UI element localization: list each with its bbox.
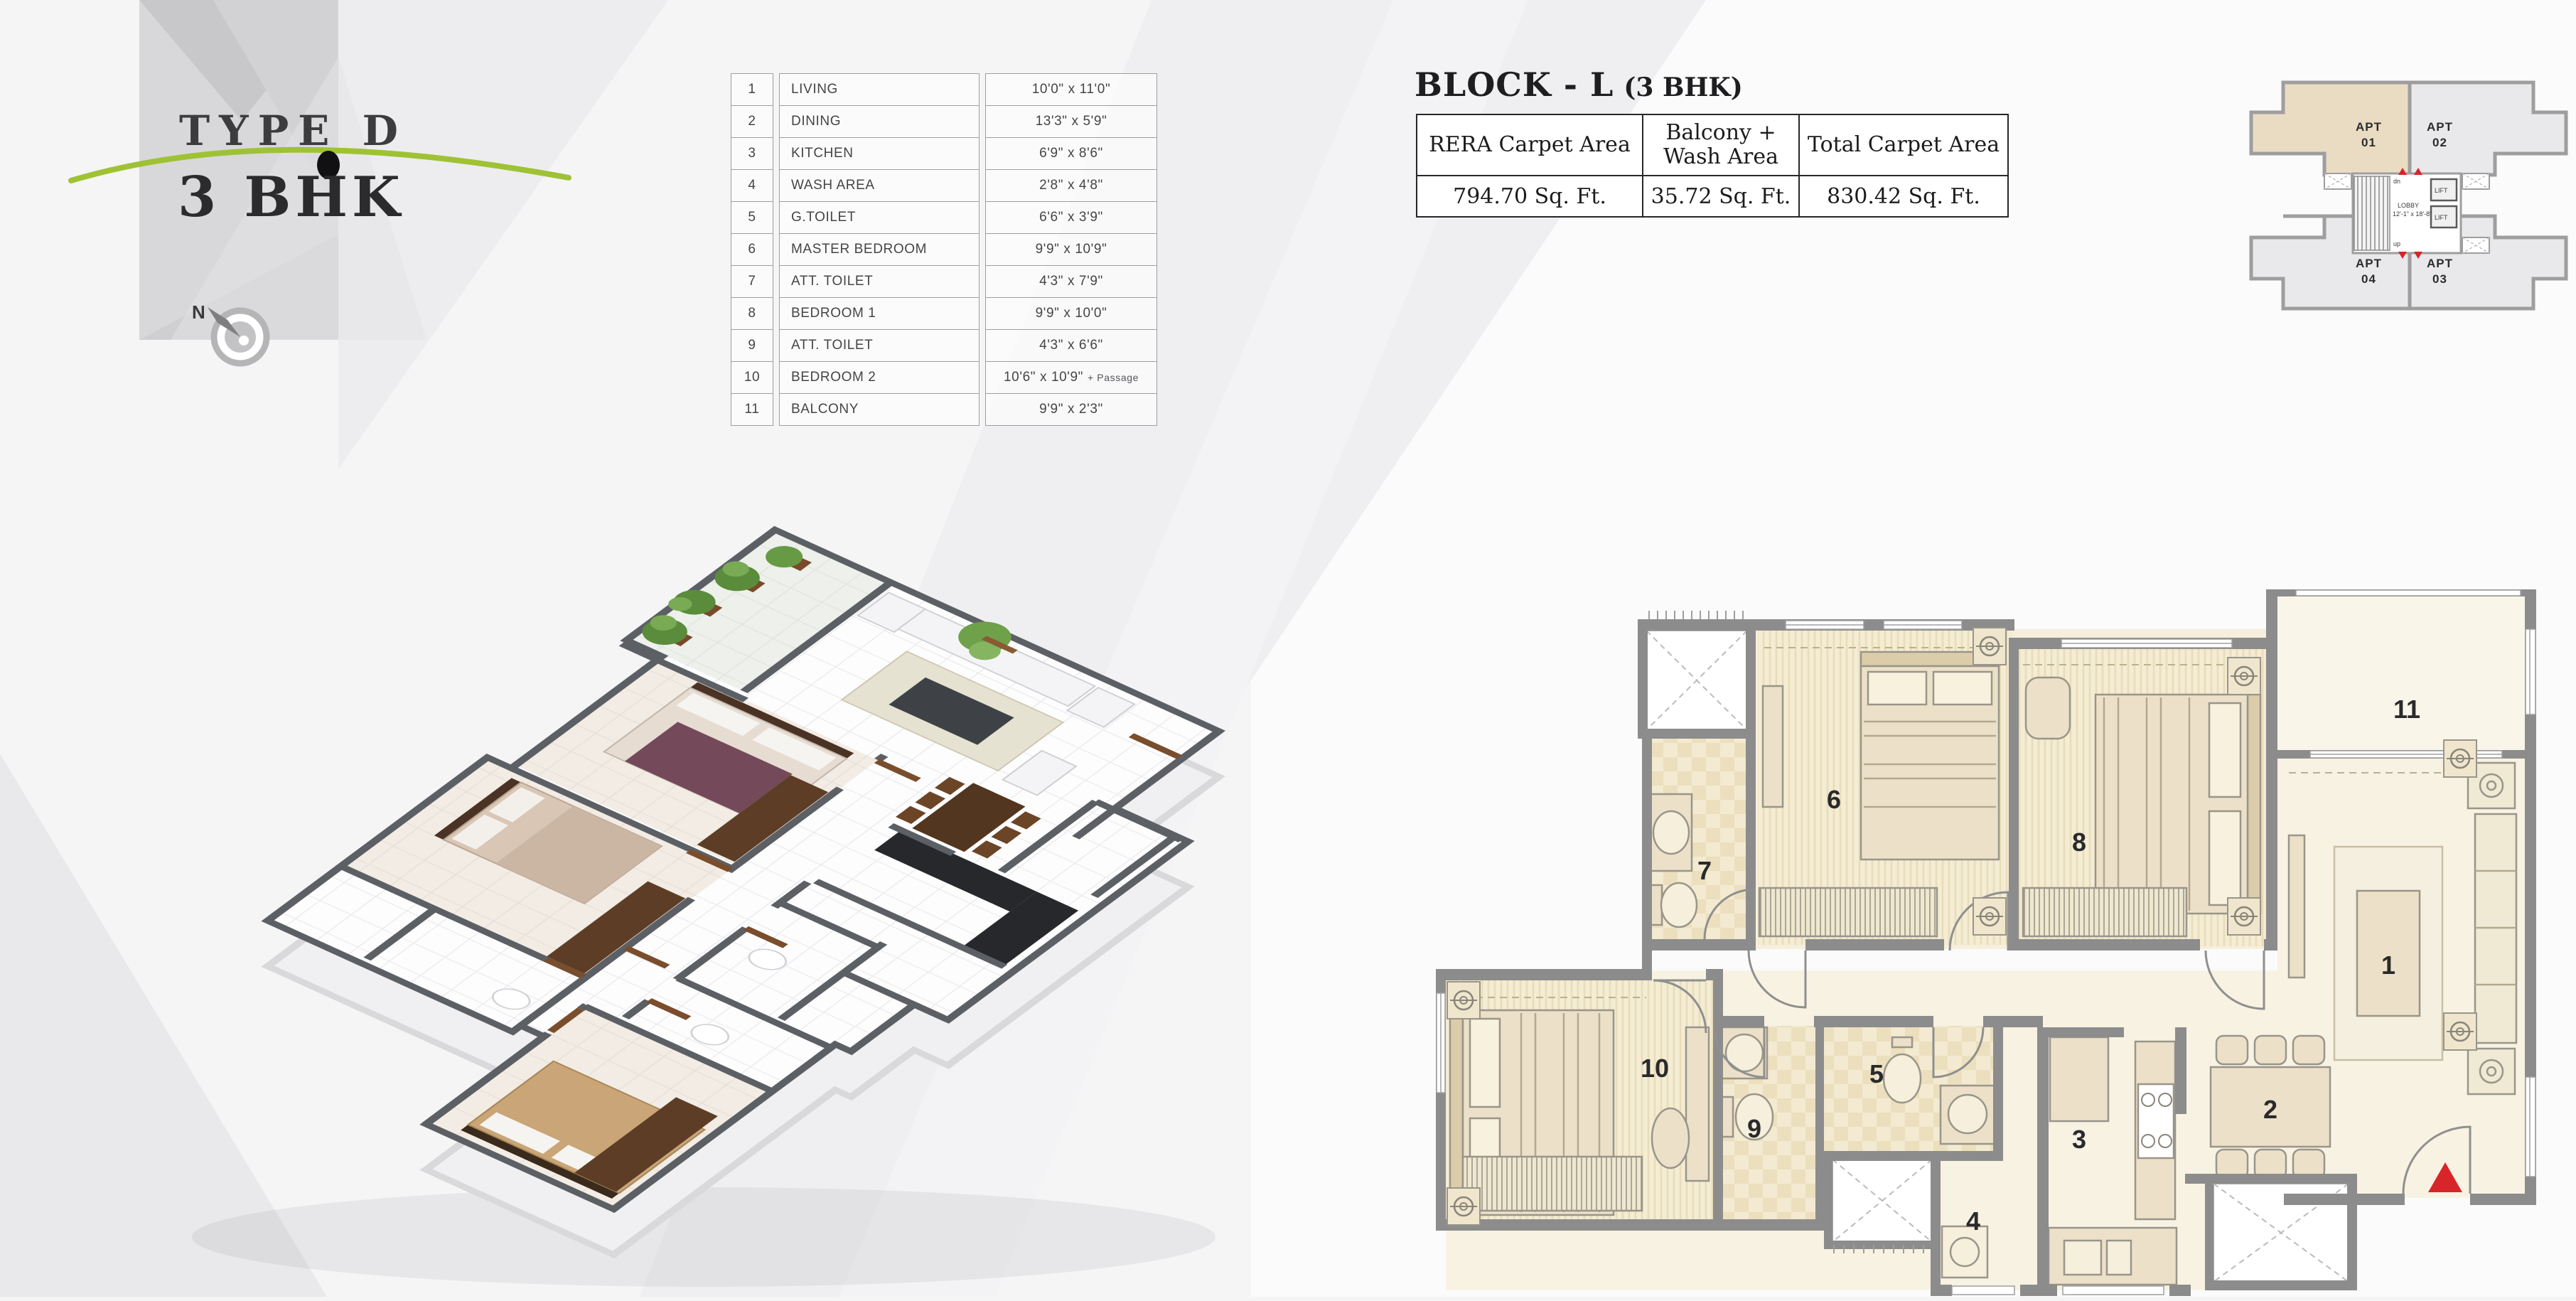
table-row: 3KITCHEN6'9" x 8'6"	[731, 137, 1157, 170]
room-dimension-table: 1LIVING10'0" x 11'0" 2DINING13'3" x 5'9"…	[731, 74, 1157, 426]
apt-03-label: APT	[2427, 257, 2453, 270]
stairs-dn-label: dn	[2393, 178, 2400, 185]
room-label-bedroom2: 10	[1641, 1054, 1669, 1083]
floor-plan-2d: 1 2 3 4 5 6 7 8 9 10 11	[1436, 587, 2573, 1297]
key-plan: LIFT LIFT LOBBY 12'-1" x 18'-8" dn up AP…	[2240, 68, 2576, 324]
compass: N	[176, 283, 311, 397]
svg-text:04: 04	[2361, 272, 2376, 286]
area-value: 35.72 Sq. Ft.	[1643, 176, 1800, 216]
room-label-kitchen: 3	[2072, 1125, 2086, 1154]
apt-01-area	[2251, 82, 2410, 175]
floor-plan-3d	[92, 498, 1287, 1301]
room-label-dining: 2	[2263, 1095, 2277, 1124]
column-header: Total Carpet Area	[1800, 115, 2007, 176]
room-label-gtoilet: 5	[1869, 1059, 1884, 1088]
render-shadow	[192, 1187, 1215, 1287]
lobby-size-label: 12'-1" x 18'-8"	[2393, 210, 2432, 218]
table-row: 7ATT. TOILET4'3" x 7'9"	[731, 265, 1157, 298]
stairs-up-label: up	[2393, 240, 2400, 247]
table-row: 5G.TOILET6'6" x 3'9"	[731, 201, 1157, 234]
lift-label: LIFT	[2435, 187, 2448, 194]
area-value: 830.42 Sq. Ft.	[1800, 176, 2007, 216]
carpet-area-table: RERA Carpet Area Balcony + Wash Area Tot…	[1416, 114, 2009, 218]
table-row: 4WASH AREA2'8" x 4'8"	[731, 169, 1157, 202]
room-label-att-toilet2: 9	[1747, 1114, 1761, 1143]
table-row: 8BEDROOM 19'9" x 10'0"	[731, 297, 1157, 330]
room-label-balcony: 11	[2393, 695, 2420, 724]
block-title: BLOCK - L(3 BHK)	[1415, 65, 1743, 104]
svg-text:02: 02	[2432, 136, 2447, 149]
room-label-bedroom1: 8	[2072, 828, 2086, 857]
column-header: Balcony + Wash Area	[1643, 115, 1800, 176]
block-title-main: BLOCK - L	[1415, 65, 1614, 104]
table-row: 6MASTER BEDROOM9'9" x 10'9"	[731, 233, 1157, 266]
apt-02-label: APT	[2427, 120, 2453, 134]
plan-bhk-title: 3 BHK	[178, 165, 404, 230]
column-header: RERA Carpet Area	[1417, 115, 1643, 176]
table-row: 2DINING13'3" x 5'9"	[731, 105, 1157, 138]
table-row: 1LIVING10'0" x 11'0"	[731, 73, 1157, 106]
compass-north-label: N	[192, 301, 205, 323]
table-row: 11BALCONY9'9" x 2'3"	[731, 393, 1157, 426]
area-value: 794.70 Sq. Ft.	[1417, 176, 1643, 216]
svg-text:03: 03	[2432, 272, 2447, 286]
svg-text:01: 01	[2361, 136, 2376, 149]
balcony-floor	[2277, 596, 2531, 754]
lift-label: LIFT	[2435, 214, 2448, 221]
room-label-wash: 4	[1966, 1206, 1980, 1236]
table-row: 9ATT. TOILET4'3" x 6'6"	[731, 329, 1157, 362]
apt-01-label: APT	[2356, 120, 2382, 134]
staircase	[2354, 176, 2390, 250]
room-label-living: 1	[2381, 951, 2395, 980]
apt-04-label: APT	[2356, 257, 2382, 270]
lobby-label: LOBBY	[2398, 202, 2419, 209]
block-title-sub: (3 BHK)	[1624, 73, 1742, 102]
room-label-master-bedroom: 6	[1827, 785, 1841, 814]
table-row: 10BEDROOM 210'6" x 10'9"+ Passage	[731, 361, 1157, 394]
room-label-att-toilet1: 7	[1697, 856, 1712, 885]
